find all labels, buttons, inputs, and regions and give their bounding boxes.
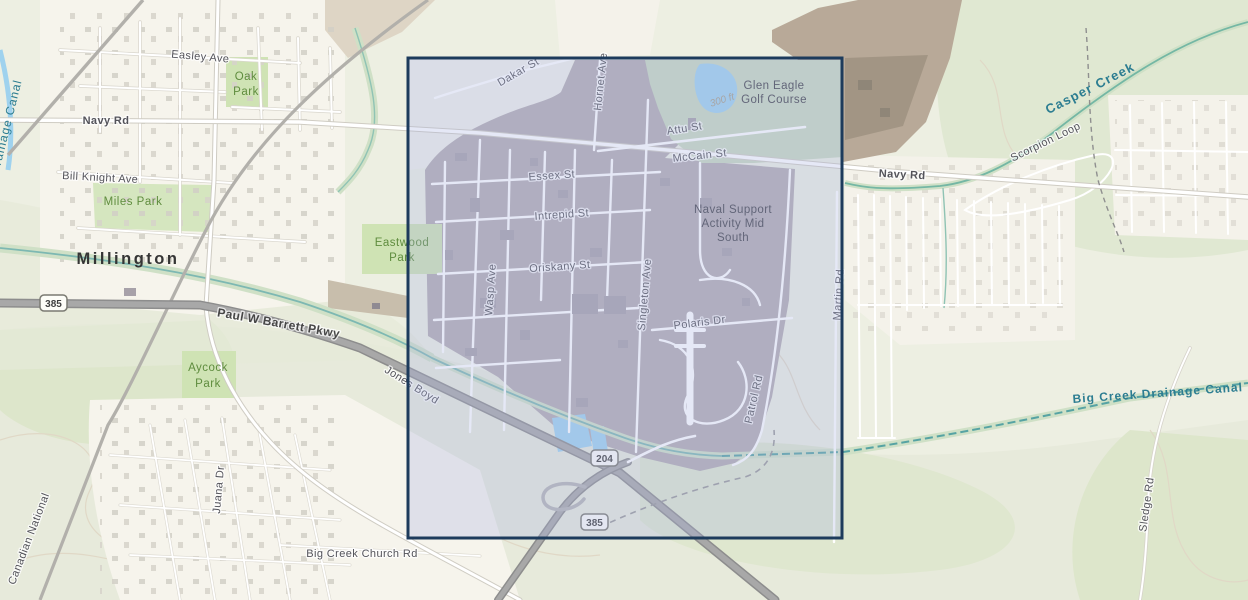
- route-shield-385-west: 385: [40, 295, 67, 311]
- street-label-big-creek-church: Big Creek Church Rd: [306, 548, 418, 560]
- park-label-aycock-line2: Park: [195, 378, 221, 390]
- park-label-miles: Miles Park: [104, 196, 163, 208]
- park-label-oak-line2: Park: [233, 86, 259, 98]
- park-label-oak-line1: Oak: [235, 71, 258, 83]
- map-viewport: Drainage Canal Easley Ave Millington Oak…: [0, 0, 1248, 600]
- extent-selection-box[interactable]: [408, 58, 842, 538]
- city-label-millington: Millington: [77, 250, 180, 268]
- street-label-navy-rd-east: Navy Rd: [878, 168, 925, 182]
- park-label-aycock-line1: Aycock: [188, 362, 228, 374]
- route-shield-385-west-label: 385: [45, 299, 62, 310]
- map-canvas[interactable]: Drainage Canal Easley Ave Millington Oak…: [0, 0, 1248, 600]
- street-label-navy-rd-west: Navy Rd: [83, 115, 130, 127]
